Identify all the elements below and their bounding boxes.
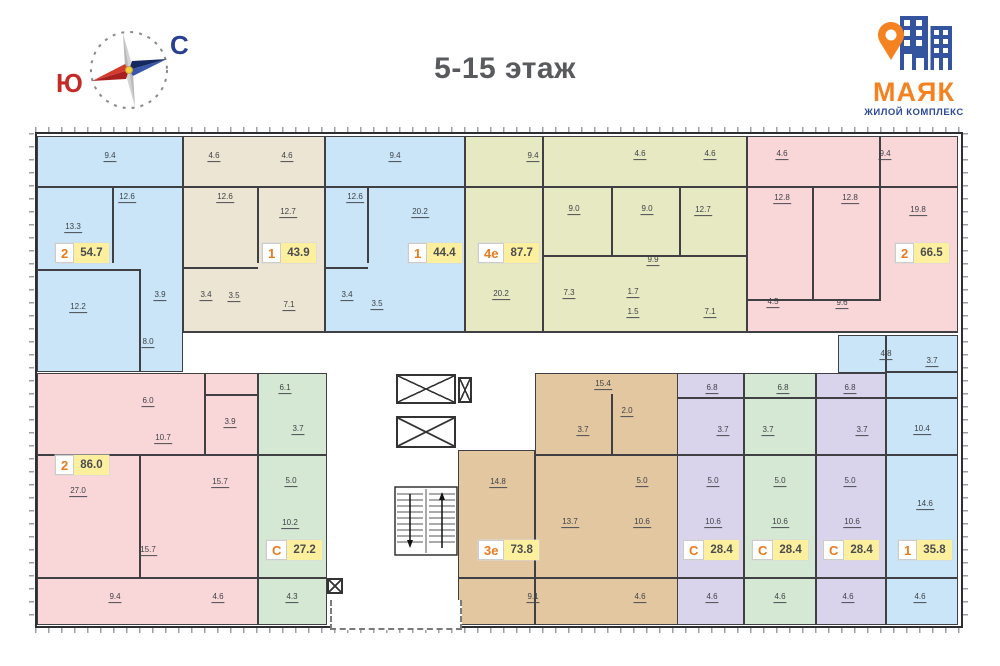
apartment-type-label: 1	[408, 243, 427, 263]
apartment-region-apt-s-27.2[interactable]	[258, 373, 327, 625]
room-area-label: 5.0	[843, 477, 856, 487]
apartment-region-apt-1-35.8[interactable]	[886, 335, 958, 625]
apartment-region-apt-2-86.0[interactable]	[37, 373, 258, 625]
apartment-area-label: 27.2	[287, 540, 321, 560]
wall-segment	[257, 187, 259, 263]
room-area-label: 4.6	[633, 150, 646, 160]
apartment-region-apt-1-44.4[interactable]	[325, 136, 465, 333]
apartment-region-apt-4e-87.7[interactable]	[465, 136, 747, 333]
room-area-label: 12.6	[118, 193, 136, 203]
room-area-label: 10.6	[843, 518, 861, 528]
apartment-area-label: 28.4	[704, 540, 738, 560]
apartment-badge-apt-1-43.9[interactable]: 143.9	[262, 243, 316, 263]
wall-segment	[611, 187, 613, 257]
room-area-label: 10.4	[913, 425, 931, 435]
wall-segment	[204, 373, 206, 455]
wall-segment	[204, 394, 258, 396]
wall-segment	[542, 255, 747, 257]
room-area-label: 12.8	[841, 194, 859, 204]
utility-shaft	[458, 377, 472, 403]
apartment-region-apt-s-28.4-a[interactable]	[677, 373, 744, 625]
room-area-label: 12.6	[216, 193, 234, 203]
room-area-label: 9.4	[526, 152, 539, 162]
room-area-label: 2.0	[620, 407, 633, 417]
apartment-type-label: С	[683, 540, 704, 560]
room-area-label: 6.8	[843, 384, 856, 394]
apartment-area-label: 43.9	[281, 243, 315, 263]
apartment-type-label: 2	[895, 243, 914, 263]
apartment-type-label: 2	[55, 455, 74, 475]
apartment-badge-apt-2-66.5[interactable]: 266.5	[895, 243, 949, 263]
wall-segment	[183, 331, 958, 333]
floor-plan: 254.79.412.613.312.23.98.0143.94.64.612.…	[0, 0, 1000, 666]
apartment-badge-apt-s-28.4-a[interactable]: С28.4	[683, 540, 739, 560]
wall-segment	[112, 187, 114, 263]
apartment-area-label: 28.4	[773, 540, 807, 560]
room-area-label: 4.5	[766, 298, 779, 308]
room-area-label: 13.7	[561, 518, 579, 528]
wall-segment	[879, 136, 881, 301]
apartment-type-label: 1	[262, 243, 281, 263]
apartment-type-label: С	[823, 540, 844, 560]
room-area-label: 10.6	[704, 518, 722, 528]
room-area-label: 6.1	[278, 384, 291, 394]
room-area-label: 4.6	[841, 593, 854, 603]
apartment-badge-apt-4e-87.7[interactable]: 4е87.7	[478, 243, 539, 263]
wall-segment	[37, 269, 141, 271]
apartment-badge-apt-3e-73.8[interactable]: 3е73.8	[478, 540, 539, 560]
room-area-label: 3.7	[855, 426, 868, 436]
apartment-area-label: 35.8	[917, 540, 951, 560]
wall-segment	[542, 136, 544, 332]
room-area-label: 10.2	[281, 519, 299, 529]
apartment-region-apt-s-28.4-b[interactable]	[744, 373, 816, 625]
room-area-label: 9.9	[646, 256, 659, 266]
wall-segment	[886, 371, 958, 373]
room-area-label: 9.0	[640, 205, 653, 215]
apartment-area-label: 86.0	[74, 455, 108, 475]
wall-segment	[258, 454, 327, 456]
outer-wall-ticks-right	[963, 133, 968, 627]
room-area-label: 15.4	[594, 380, 612, 390]
room-area-label: 15.7	[139, 546, 157, 556]
room-area-label: 5.0	[284, 477, 297, 487]
room-area-label: 3.7	[761, 426, 774, 436]
room-area-label: 20.2	[492, 290, 510, 300]
wall-segment	[611, 394, 613, 456]
wall-segment	[458, 577, 958, 579]
room-area-label: 12.2	[69, 303, 87, 313]
wall-segment	[535, 454, 680, 456]
room-area-label: 4.6	[773, 593, 786, 603]
wall-segment	[139, 454, 141, 578]
room-area-label: 4.6	[211, 593, 224, 603]
room-area-label: 9.1	[526, 593, 539, 603]
room-area-label: 3.9	[223, 418, 236, 428]
room-area-label: 3.5	[370, 300, 383, 310]
room-area-label: 14.6	[916, 500, 934, 510]
apartment-area-label: 66.5	[914, 243, 948, 263]
apartment-type-label: 2	[55, 243, 74, 263]
room-area-label: 9.4	[103, 152, 116, 162]
apartment-area-label: 44.4	[427, 243, 461, 263]
room-area-label: 4.6	[633, 593, 646, 603]
wall-segment	[677, 397, 958, 399]
room-area-label: 4.6	[913, 593, 926, 603]
room-area-label: 4.6	[207, 152, 220, 162]
apartment-type-label: С	[752, 540, 773, 560]
wall-segment	[183, 267, 258, 269]
room-area-label: 7.1	[282, 301, 295, 311]
wall-segment	[367, 187, 369, 263]
room-area-label: 8.0	[141, 338, 154, 348]
apartment-badge-apt-s-28.4-c[interactable]: С28.4	[823, 540, 879, 560]
apartment-type-label: С	[266, 540, 287, 560]
apartment-type-label: 4е	[478, 243, 504, 263]
room-area-label: 1.5	[626, 308, 639, 318]
room-area-label: 3.9	[153, 291, 166, 301]
room-area-label: 12.7	[694, 206, 712, 216]
room-area-label: 10.6	[771, 518, 789, 528]
room-area-label: 19.8	[909, 206, 927, 216]
room-area-label: 3.7	[716, 426, 729, 436]
apartment-area-label: 28.4	[844, 540, 878, 560]
room-area-label: 9.4	[388, 152, 401, 162]
room-area-label: 7.1	[703, 308, 716, 318]
apartment-badge-apt-2-86.0[interactable]: 286.0	[55, 455, 109, 475]
room-area-label: 7.3	[562, 289, 575, 299]
room-area-label: 4.3	[285, 593, 298, 603]
room-area-label: 12.7	[279, 208, 297, 218]
apartment-badge-apt-s-28.4-b[interactable]: С28.4	[752, 540, 808, 560]
apartment-area-label: 87.7	[504, 243, 538, 263]
wall-segment	[325, 267, 368, 269]
room-area-label: 10.7	[154, 434, 172, 444]
room-area-label: 6.8	[705, 384, 718, 394]
outer-wall-ticks-bottom	[35, 628, 962, 633]
wall-segment	[37, 186, 958, 188]
apartment-badge-apt-2-54.7[interactable]: 254.7	[55, 243, 109, 263]
outer-wall-ticks-top	[35, 127, 962, 132]
room-area-label: 27.0	[69, 487, 87, 497]
room-area-label: 20.2	[411, 208, 429, 218]
room-area-label: 15.7	[211, 478, 229, 488]
room-area-label: 4.6	[775, 150, 788, 160]
wall-segment	[677, 454, 958, 456]
apartment-badge-apt-1-35.8[interactable]: 135.8	[898, 540, 952, 560]
room-area-label: 4.8	[879, 350, 892, 360]
wall-segment	[37, 577, 327, 579]
room-area-label: 3.4	[340, 291, 353, 301]
room-area-label: 3.5	[227, 292, 240, 302]
room-area-label: 6.8	[776, 384, 789, 394]
staircase	[394, 486, 458, 561]
room-area-label: 3.7	[291, 425, 304, 435]
room-area-label: 5.0	[635, 477, 648, 487]
room-area-label: 4.6	[705, 593, 718, 603]
apartment-type-label: 3е	[478, 540, 504, 560]
apartment-type-label: 1	[898, 540, 917, 560]
apartment-area-label: 54.7	[74, 243, 108, 263]
wall-segment	[139, 269, 141, 372]
outer-wall-ticks-left	[29, 133, 34, 627]
apartment-badge-apt-s-27.2[interactable]: С27.2	[266, 540, 322, 560]
room-area-label: 6.0	[141, 397, 154, 407]
room-area-label: 4.6	[280, 152, 293, 162]
room-area-label: 9.0	[567, 205, 580, 215]
elevator-shaft-1	[396, 374, 456, 404]
room-area-label: 9.4	[108, 593, 121, 603]
elevator-shaft-2	[396, 416, 456, 448]
room-area-label: 5.0	[706, 477, 719, 487]
room-area-label: 5.0	[773, 477, 786, 487]
apartment-region-apt-s-28.4-c[interactable]	[816, 373, 886, 625]
room-area-label: 9.4	[878, 150, 891, 160]
room-area-label: 3.7	[576, 426, 589, 436]
wall-segment	[812, 187, 814, 301]
room-area-label: 9.6	[835, 299, 848, 309]
room-area-label: 12.8	[773, 194, 791, 204]
apartment-badge-apt-1-44.4[interactable]: 144.4	[408, 243, 462, 263]
room-area-label: 3.7	[925, 357, 938, 367]
small-shaft	[327, 578, 343, 594]
room-area-label: 12.6	[346, 193, 364, 203]
room-area-label: 1.7	[626, 288, 639, 298]
room-area-label: 4.6	[703, 150, 716, 160]
apartment-region-apt-1-43.9[interactable]	[183, 136, 325, 333]
room-area-label: 13.3	[64, 223, 82, 233]
room-area-label: 10.6	[633, 518, 651, 528]
wall-segment	[679, 187, 681, 257]
apartment-area-label: 73.8	[504, 540, 538, 560]
entrance-vestibule	[330, 600, 462, 630]
room-area-label: 3.4	[199, 291, 212, 301]
apartment-region-apt-3e-73.8[interactable]	[535, 373, 680, 625]
room-area-label: 14.8	[489, 478, 507, 488]
